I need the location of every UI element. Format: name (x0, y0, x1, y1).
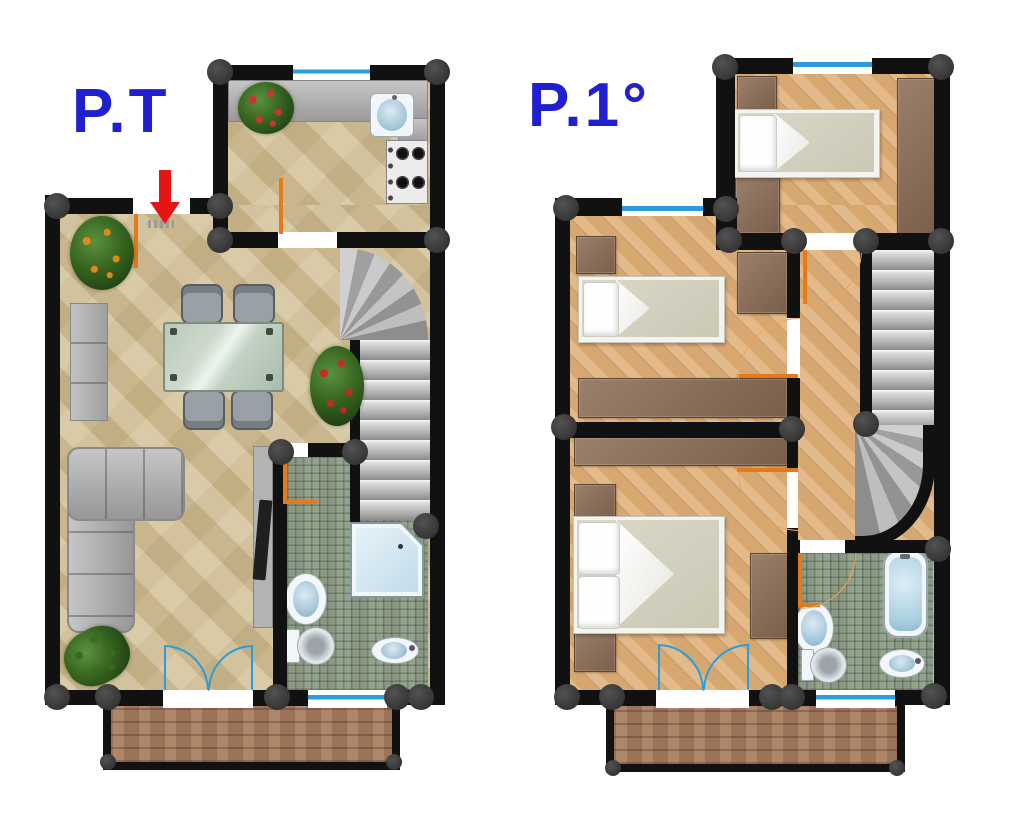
bedroom1-window (793, 58, 872, 74)
column (779, 416, 805, 442)
bidet-bowl (381, 642, 407, 659)
stair-step (872, 330, 934, 350)
master-nightstand (574, 484, 616, 518)
column (44, 684, 70, 710)
column (781, 228, 807, 254)
column (207, 227, 233, 253)
entrance-threshold (148, 220, 174, 228)
column (928, 228, 954, 254)
entrance-arrow-icon (159, 170, 171, 204)
column (207, 59, 233, 85)
stair-step (872, 270, 934, 290)
stair-step (872, 310, 934, 330)
table-leg (170, 328, 177, 335)
dining-chair (183, 390, 225, 430)
column (779, 684, 805, 710)
stair-step (360, 420, 430, 440)
bedroom1-desk (737, 76, 777, 111)
bathtub-faucet (900, 554, 910, 559)
stair-step (872, 250, 934, 270)
stair-step (872, 350, 934, 370)
column (889, 760, 905, 776)
kitchen-window (293, 65, 370, 80)
terrace (103, 698, 400, 770)
plant (310, 346, 364, 426)
column (95, 684, 121, 710)
counter-plant (238, 82, 294, 134)
column (268, 439, 294, 465)
column (100, 754, 116, 770)
stove-burner (412, 176, 425, 189)
column (853, 228, 879, 254)
bedroom1-wardrobe (897, 78, 936, 239)
toilet-bowl (297, 627, 335, 665)
column (342, 439, 368, 465)
toilet2-bowl (810, 647, 847, 683)
sideboard (70, 303, 108, 421)
bathtub-basin (889, 557, 922, 631)
kitchen-sink-bowl (377, 99, 407, 131)
bidet2-faucet (915, 658, 921, 664)
wall-left (555, 198, 570, 705)
bathroom2-window (816, 690, 895, 708)
stair-step (872, 370, 934, 390)
table-leg (266, 374, 273, 381)
column (424, 59, 450, 85)
bedroom1-dresser (735, 176, 780, 234)
master-wardrobe (574, 437, 790, 466)
master-pillow (578, 522, 620, 575)
table-leg (266, 328, 273, 335)
column (551, 414, 577, 440)
bedroom2-wardrobe (578, 378, 788, 418)
stair-step (360, 460, 430, 480)
french-door-opening (656, 690, 749, 708)
column (264, 684, 290, 710)
sofa-seat (67, 447, 185, 521)
table-leg (170, 374, 177, 381)
bathroom-window (308, 690, 387, 708)
master-pillow (578, 576, 620, 629)
column (921, 683, 947, 709)
column (925, 536, 951, 562)
kitchen-door-leaf (279, 178, 283, 234)
bathroom2-door-opening (800, 540, 845, 553)
master-nightstand (574, 632, 616, 672)
column (553, 195, 579, 221)
stair-step (360, 340, 430, 360)
column (928, 54, 954, 80)
kitchen-faucet (392, 95, 397, 100)
column (413, 513, 439, 539)
stove-burner (396, 147, 409, 160)
column (207, 193, 233, 219)
stove-knobs (387, 142, 394, 202)
wall-left (45, 195, 60, 705)
column (408, 684, 434, 710)
stair-step (360, 360, 430, 380)
bathroom2-sink-bowl (801, 610, 827, 646)
french-door-opening (163, 690, 253, 708)
column (853, 411, 879, 437)
bedroom1-pillow (739, 115, 777, 172)
dining-chair (231, 390, 273, 430)
master-dresser (750, 553, 789, 639)
dining-chair (233, 284, 275, 324)
bathroom-sink-bowl (293, 581, 319, 617)
stair-step (360, 380, 430, 400)
stove-burner (396, 176, 409, 189)
shower-drain (398, 544, 403, 549)
stairwell-wall (860, 250, 872, 430)
column (44, 193, 70, 219)
column (712, 54, 738, 80)
bedroom2-dresser (737, 252, 788, 314)
bathroom-door-swing (283, 500, 317, 504)
bedroom2-pillow (583, 282, 619, 337)
stove-burner (412, 147, 425, 160)
column (605, 760, 621, 776)
column (713, 196, 739, 222)
column (599, 684, 625, 710)
wall-bedroom2-bottom (555, 422, 800, 438)
stair-step (872, 390, 934, 410)
bidet-faucet (409, 645, 415, 651)
stair-step (360, 400, 430, 420)
floor-plan-canvas: P.T (0, 0, 1024, 838)
column (424, 227, 450, 253)
bidet2-bowl (889, 655, 915, 672)
stair-step (872, 290, 934, 310)
entrance-door-leaf (134, 214, 138, 268)
bedroom2-window (622, 198, 703, 216)
column (386, 754, 402, 770)
stair-step (360, 440, 430, 460)
kitchen-door-opening (278, 232, 337, 248)
ground-floor-label: P.T (72, 76, 169, 147)
first-floor-label: P.1° (528, 70, 650, 141)
balcony (606, 698, 905, 772)
column (716, 227, 742, 253)
bedroom2-desk (576, 236, 616, 274)
plant (70, 216, 134, 290)
column (384, 684, 410, 710)
wall-right (430, 65, 445, 705)
column (554, 684, 580, 710)
dining-chair (181, 284, 223, 324)
wall-right (934, 58, 950, 705)
stair-step (360, 480, 430, 500)
